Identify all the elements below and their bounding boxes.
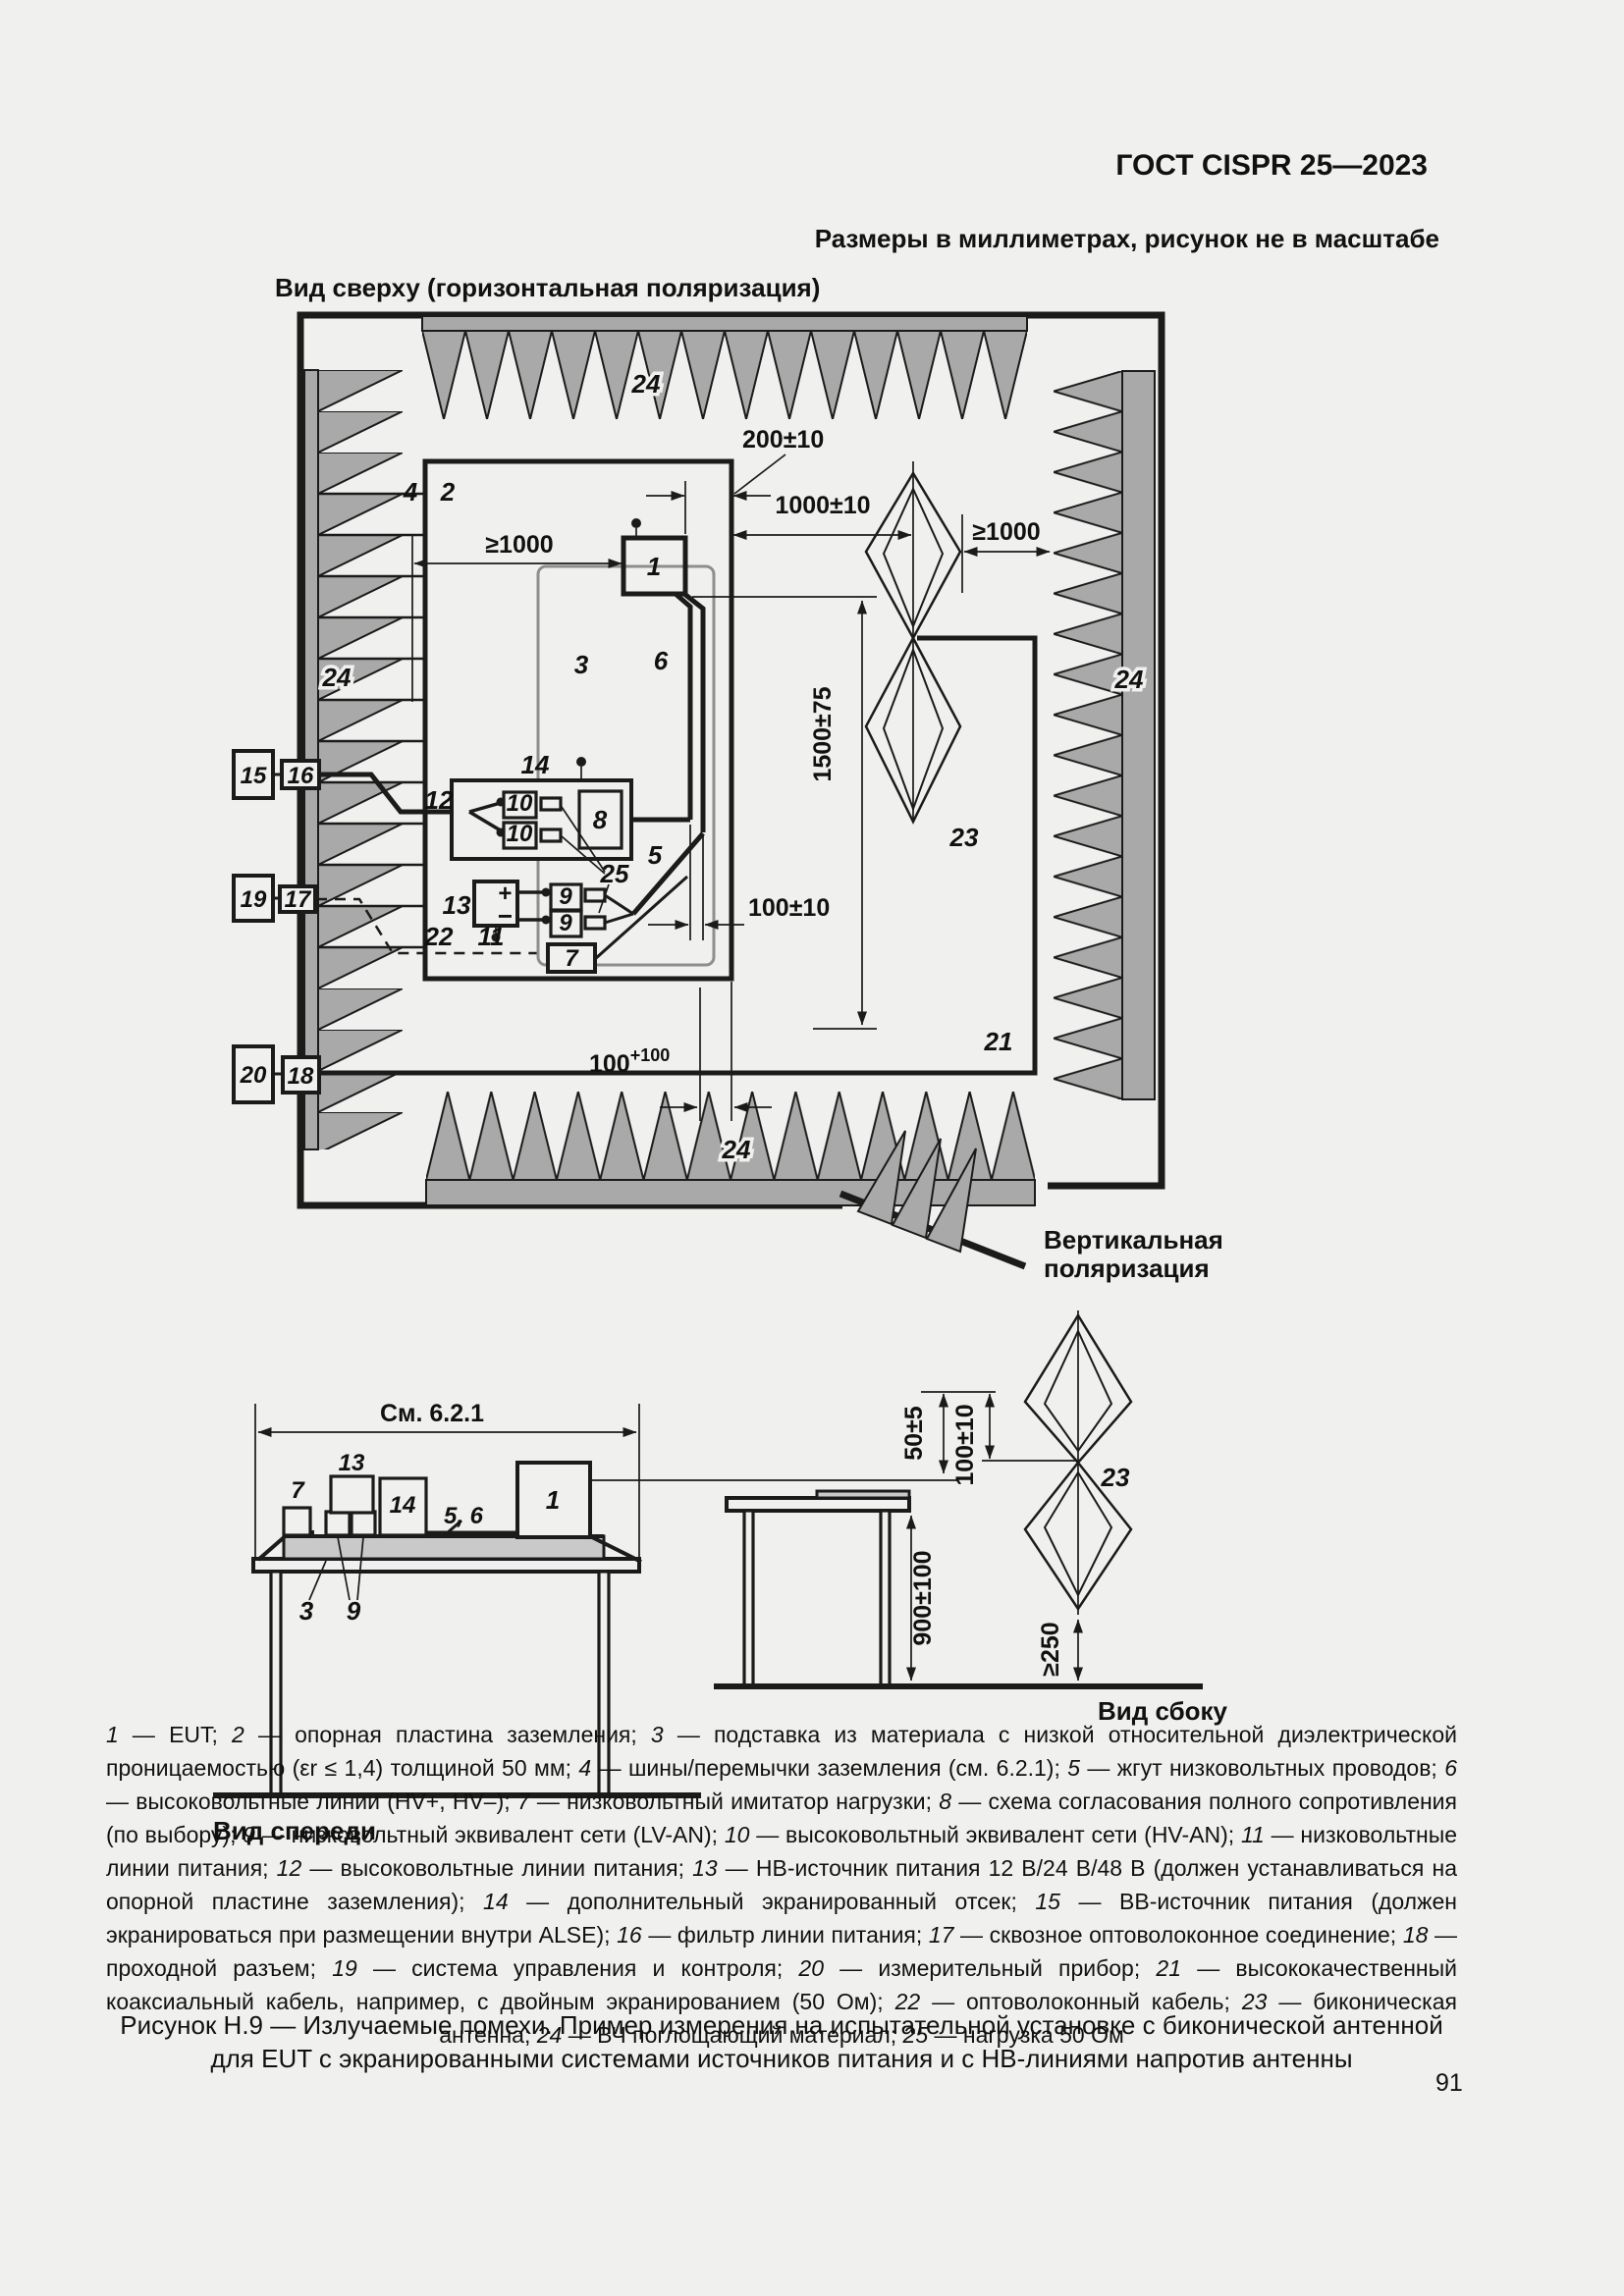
dim-1000: 1000±10 <box>775 492 870 519</box>
label-3-front: 3 <box>299 1596 314 1626</box>
label-19: 19 <box>241 886 267 913</box>
load-50ohm <box>585 917 605 929</box>
load-50ohm <box>585 889 605 901</box>
dim-100-side: 100±10 <box>951 1404 979 1485</box>
dim-1500: 1500±75 <box>809 686 837 781</box>
label-9b: 9 <box>559 910 572 936</box>
label-22: 22 <box>424 922 454 951</box>
label-4: 4 <box>403 477 418 507</box>
label-23-top: 23 <box>949 823 979 852</box>
hv-lines-6 <box>676 594 690 820</box>
legend-text: 1 — EUT; 2 — опорная пластина заземления… <box>106 1718 1457 2052</box>
label-20: 20 <box>240 1062 267 1089</box>
bench-top-side <box>727 1498 909 1511</box>
label-5: 5 <box>648 840 663 870</box>
label-9a: 9 <box>559 883 572 910</box>
slab-side <box>817 1491 909 1498</box>
absorber-right-column <box>1054 371 1155 1099</box>
label-11: 11 <box>478 922 505 951</box>
load-50ohm <box>541 829 561 841</box>
label-1-front: 1 <box>546 1485 560 1515</box>
lv-diagonal <box>633 833 703 914</box>
label-17: 17 <box>285 886 312 913</box>
biconical-antenna-top <box>866 461 960 822</box>
vertical-polarization-label-2: поляризация <box>1044 1254 1210 1283</box>
dim-50: 50±5 <box>900 1406 928 1461</box>
figure-caption: Рисунок Н.9 — Излучаемые помехи. Пример … <box>106 2008 1457 2075</box>
label-7-front: 7 <box>291 1477 305 1504</box>
label-2: 2 <box>440 477 456 507</box>
label-25: 25 <box>600 859 629 888</box>
lv-an-front <box>352 1512 375 1535</box>
label-14-front: 14 <box>390 1492 416 1519</box>
dim-900: 900±100 <box>909 1550 937 1645</box>
label-13: 13 <box>443 890 471 920</box>
label-23-side: 23 <box>1101 1463 1130 1492</box>
caption-line-1: Рисунок Н.9 — Излучаемые помехи. Пример … <box>106 2008 1457 2042</box>
test-harness <box>595 594 703 959</box>
top-view: Вид сверху (горизонтальная поляризация) <box>234 273 1223 1283</box>
label-24-top: 24 <box>631 369 661 399</box>
dim-ge1000-right: ≥1000 <box>972 518 1040 546</box>
label-10a: 10 <box>507 790 533 817</box>
label-7: 7 <box>565 945 579 972</box>
label-13-front: 13 <box>339 1450 365 1476</box>
bench-leg-side <box>744 1511 753 1686</box>
label-14: 14 <box>521 750 550 779</box>
top-view-title: Вид сверху (горизонтальная поляризация) <box>275 273 820 302</box>
load-simulator-7-front <box>284 1508 310 1535</box>
label-56-front: 5, 6 <box>444 1503 484 1529</box>
label-15: 15 <box>241 763 267 789</box>
bench-top <box>253 1559 639 1572</box>
label-1: 1 <box>647 552 661 581</box>
bench-leg-side <box>881 1511 890 1686</box>
lv-an-front <box>326 1512 350 1535</box>
side-view: 50±5 100±10 900±100 ≥250 23 Вид сбоку <box>714 1310 1228 1726</box>
label-24-right: 24 <box>1114 665 1144 694</box>
vertical-polarization-label-1: Вертикальная <box>1044 1225 1223 1255</box>
lv-harness-5 <box>684 594 703 832</box>
page-number: 91 <box>1435 2069 1463 2098</box>
label-8: 8 <box>593 805 608 834</box>
label-21: 21 <box>984 1027 1013 1056</box>
load-50ohm <box>541 798 561 810</box>
label-18: 18 <box>288 1063 314 1090</box>
label-3: 3 <box>574 650 589 679</box>
battery-13-front <box>331 1476 373 1513</box>
see-ref: См. 6.2.1 <box>380 1400 484 1427</box>
document-page: ГОСТ CISPR 25—2023 Размеры в миллиметрах… <box>0 0 1624 2296</box>
load-sim-line <box>595 877 687 959</box>
dim-100-harness: 100±10 <box>748 894 830 922</box>
eut-1: 1 <box>623 518 685 594</box>
dim-ge1000-left: ≥1000 <box>485 531 553 559</box>
label-6: 6 <box>654 646 669 675</box>
label-10b: 10 <box>507 821 533 847</box>
label-9-front: 9 <box>347 1596 361 1626</box>
label-16: 16 <box>288 763 314 789</box>
label-24-left: 24 <box>322 663 352 692</box>
label-24-bottom: 24 <box>722 1135 751 1164</box>
caption-line-2: для EUT с экранированными системами исто… <box>106 2042 1457 2075</box>
dim-200: 200±10 <box>742 426 824 454</box>
support-slab-3 <box>284 1536 604 1559</box>
label-12: 12 <box>425 785 454 815</box>
dim-250: ≥250 <box>1037 1622 1064 1676</box>
absorber-top-row <box>422 316 1027 419</box>
